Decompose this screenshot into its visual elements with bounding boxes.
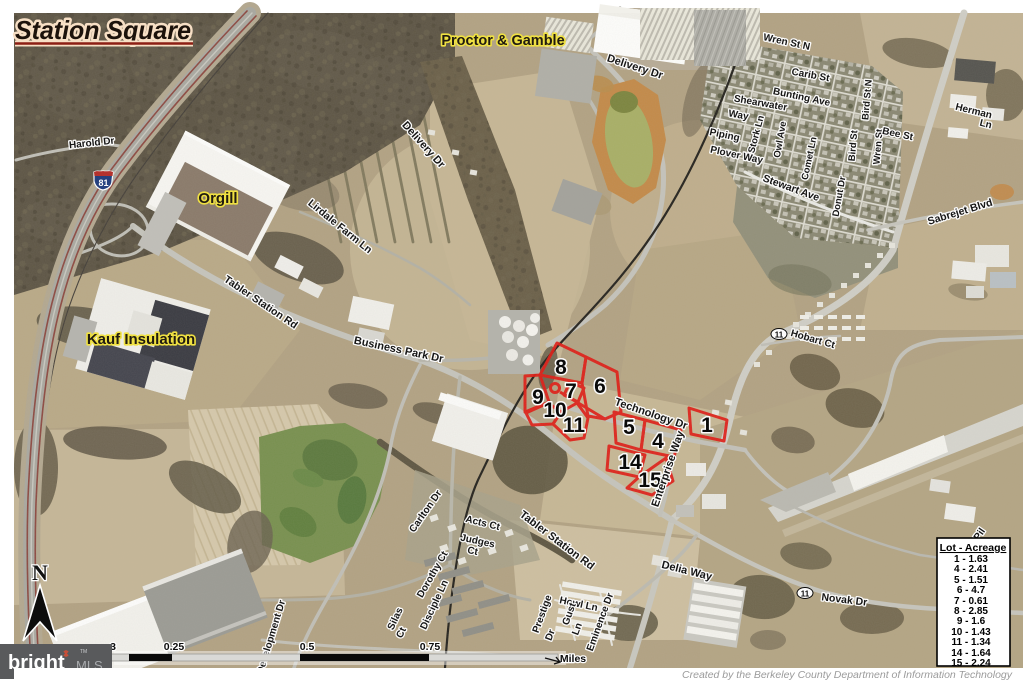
svg-text:N: N	[32, 560, 48, 585]
svg-text:0.25: 0.25	[164, 641, 185, 653]
svg-text:9 - 1.6: 9 - 1.6	[957, 616, 986, 627]
svg-text:0.75: 0.75	[420, 641, 441, 653]
svg-text:Miles: Miles	[560, 653, 586, 665]
svg-text:TM: TM	[80, 649, 87, 655]
svg-text:Created by the Berkeley County: Created by the Berkeley County Departmen…	[682, 669, 1013, 681]
svg-text:11 - 1.34: 11 - 1.34	[952, 637, 991, 648]
svg-text:0.5: 0.5	[300, 641, 315, 653]
svg-text:6 - 4.7: 6 - 4.7	[957, 585, 986, 596]
svg-text:Lot - Acreage: Lot - Acreage	[940, 542, 1007, 554]
svg-text:15 - 2.24: 15 - 2.24	[951, 658, 991, 669]
svg-text:4 - 2.41: 4 - 2.41	[954, 564, 988, 575]
